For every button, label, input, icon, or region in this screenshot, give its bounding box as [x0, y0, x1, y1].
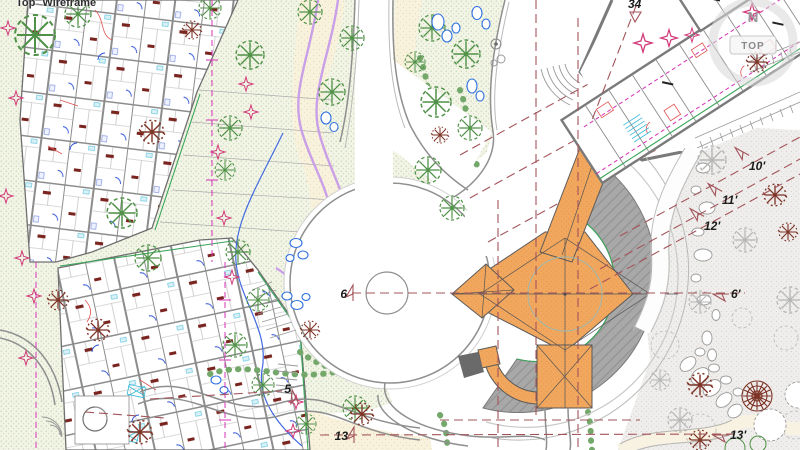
cad-viewport[interactable]: 6 5 13 10' 11' 12' 6' 13' 34 N TOP	[0, 0, 800, 450]
section-marker-11ft: 11'	[722, 193, 738, 207]
viewcube-face-label[interactable]: TOP	[741, 41, 764, 52]
section-marker-12ft: 12'	[704, 219, 721, 233]
viewport-view-control[interactable]: Top	[16, 0, 35, 9]
section-marker-10ft: 10'	[749, 159, 766, 173]
section-marker-13: 13	[335, 429, 349, 443]
section-marker-5: 5	[284, 382, 291, 396]
site-plan-canvas[interactable]: 6 5 13 10' 11' 12' 6' 13' 34 N TOP	[0, 0, 800, 450]
section-marker-6: 6	[340, 287, 347, 301]
viewcube-north-label[interactable]: N	[748, 9, 759, 26]
dense-round-tree	[742, 381, 772, 411]
section-marker-34: 34	[628, 0, 642, 11]
viewport-controls[interactable]: Top Wireframe	[16, 0, 100, 9]
viewport-style-control[interactable]: Wireframe	[42, 0, 96, 9]
section-marker-6ft: 6'	[731, 287, 742, 301]
round-room	[75, 396, 129, 444]
section-marker-13ft: 13'	[730, 428, 747, 442]
